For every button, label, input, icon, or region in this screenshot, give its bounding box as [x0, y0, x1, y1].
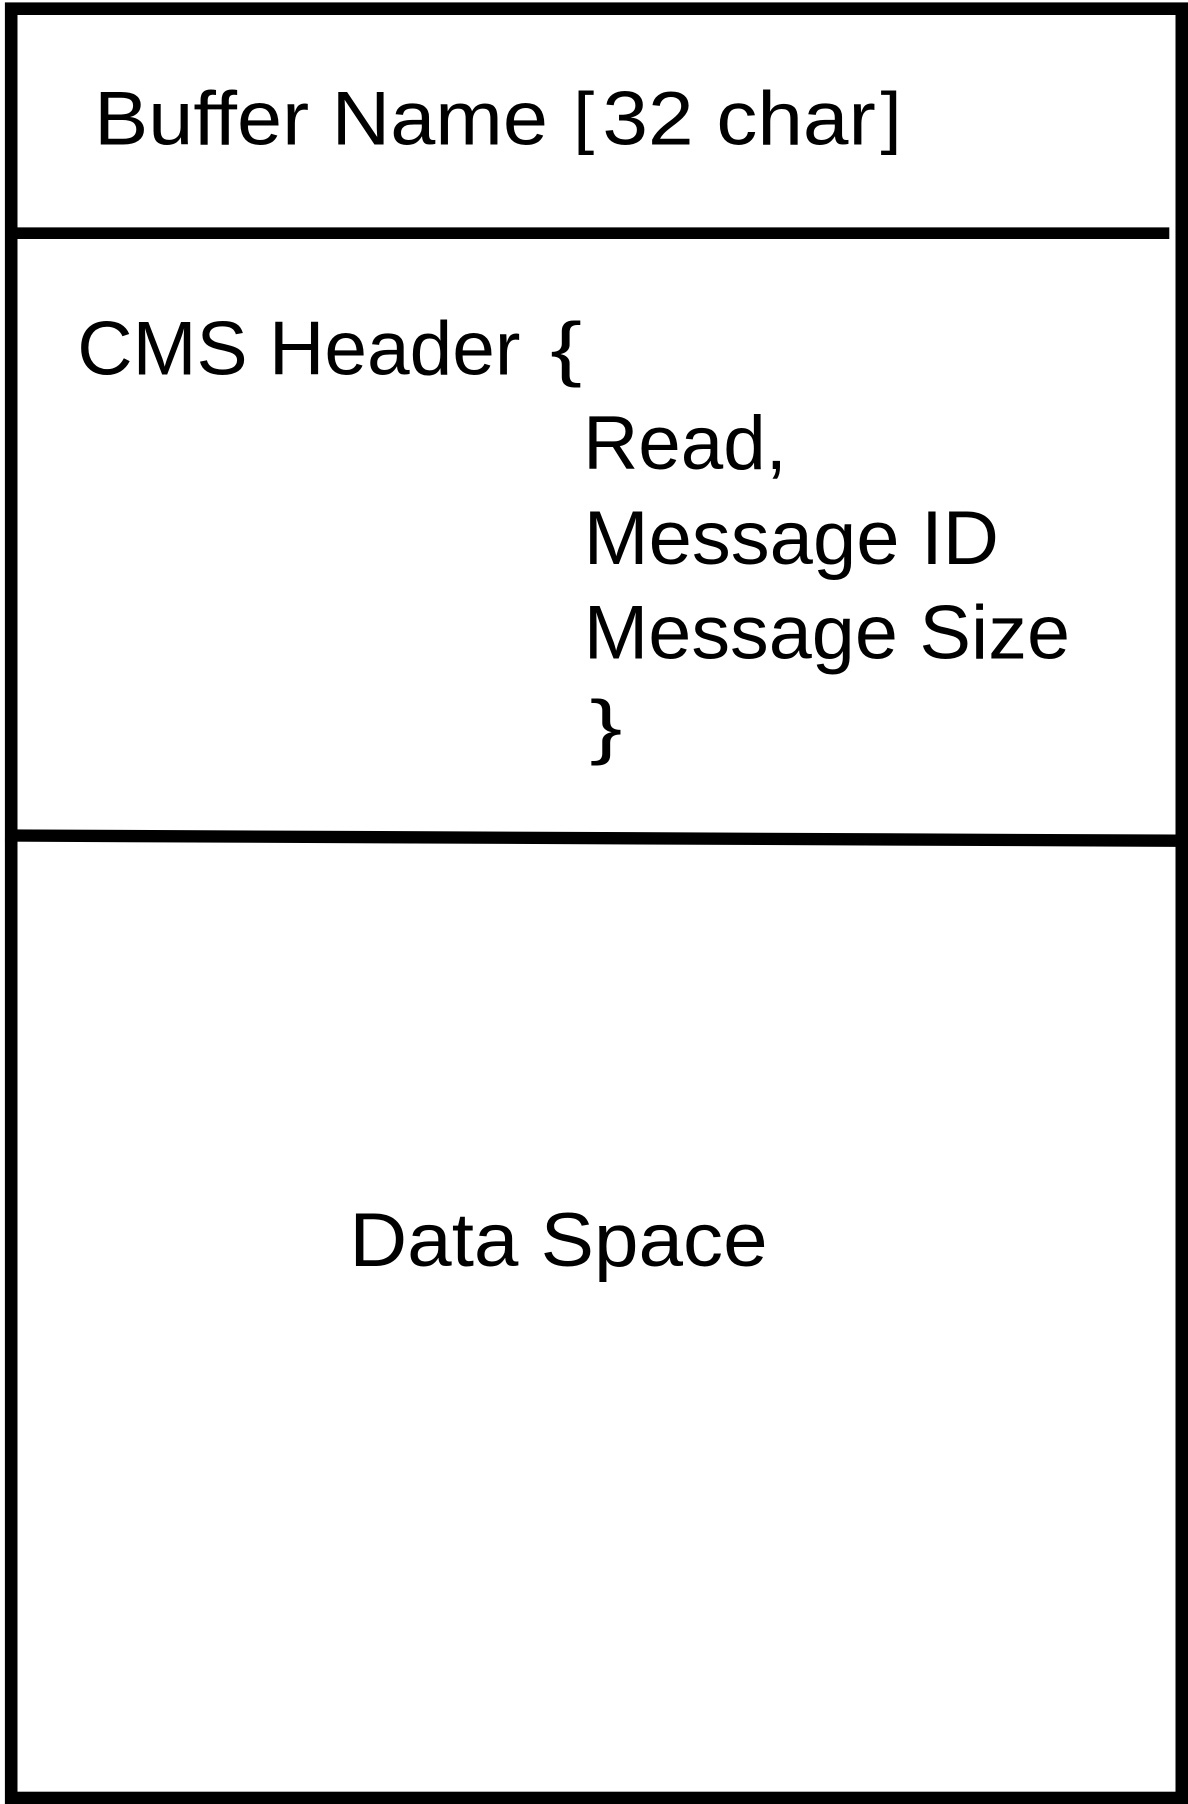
svg-text:{: { — [550, 308, 582, 388]
svg-text:[: [ — [573, 79, 594, 156]
svg-text:Buffer Name: Buffer Name — [94, 76, 548, 161]
svg-text:}: } — [590, 687, 622, 767]
svg-text:32 char: 32 char — [602, 76, 875, 161]
svg-text:Message Size: Message Size — [584, 590, 1070, 675]
svg-text:Data Space: Data Space — [349, 1198, 767, 1283]
svg-text:Read,: Read, — [583, 401, 787, 486]
svg-text:CMS Header: CMS Header — [77, 307, 520, 392]
svg-text:Message ID: Message ID — [584, 496, 999, 581]
svg-text:]: ] — [881, 79, 902, 156]
